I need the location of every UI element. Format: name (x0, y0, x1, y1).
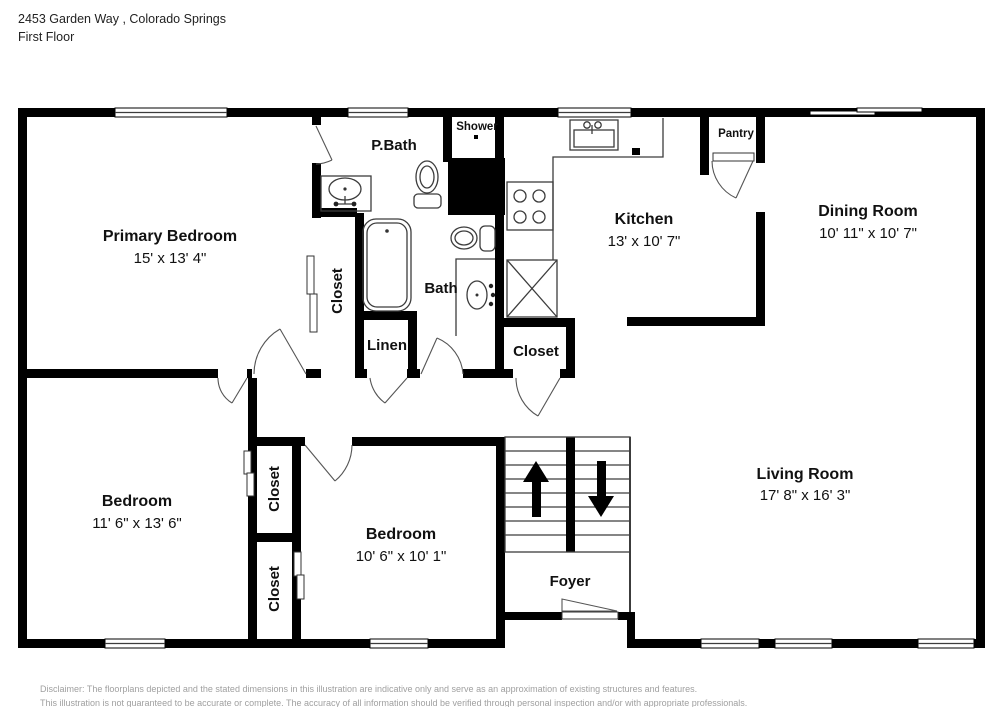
bath-toilet-icon (451, 226, 495, 251)
disclaimer: Disclaimer: The floorplans depicted and … (40, 683, 970, 707)
address-line: 2453 Garden Way , Colorado Springs (18, 10, 226, 28)
floorplan-canvas: Primary Bedroom 15' x 13' 4" Kitchen 13'… (0, 0, 1000, 707)
window (115, 108, 227, 117)
linen-label: Linen (367, 337, 407, 354)
window (701, 639, 759, 648)
hall-closet-label: Closet (513, 343, 559, 360)
primary-bedroom-door (254, 329, 306, 374)
pbath-sink-icon (321, 176, 371, 211)
window (370, 639, 428, 648)
kitchen-label: Kitchen (615, 211, 674, 228)
walls-layer (18, 108, 985, 648)
bedroom-middle-dims: 10' 6" x 10' 1" (356, 548, 447, 565)
foyer-label: Foyer (550, 573, 591, 590)
bedroom-middle-door (305, 445, 352, 481)
fridge-icon (507, 260, 557, 317)
stairs-up-arrow-icon (523, 461, 549, 517)
kitchen-dims: 13' x 10' 7" (608, 233, 681, 250)
kitchen-sink-icon (570, 120, 618, 150)
primary-closet-slider (307, 256, 317, 332)
bedroom-left-dims: 11' 6" x 13' 6" (92, 515, 182, 532)
bedroom-left-door (218, 378, 247, 403)
dining-room-label: Dining Room (818, 203, 918, 220)
window (775, 639, 832, 648)
disclaimer-line2: This illustration is not guaranteed to b… (40, 697, 970, 707)
pantry-door (712, 153, 754, 198)
window (105, 639, 165, 648)
pantry-label: Pantry (718, 128, 754, 140)
shower-label: Shower (456, 121, 498, 133)
window (348, 108, 408, 117)
linen-door (370, 378, 407, 403)
bedroom-left-label: Bedroom (102, 493, 172, 510)
bath-vanity-icon (456, 259, 495, 336)
stairs-down-arrow-icon (588, 461, 614, 517)
living-room-label: Living Room (757, 466, 854, 483)
hall-closet-door (516, 378, 560, 416)
disclaimer-line1: Disclaimer: The floorplans depicted and … (40, 683, 970, 697)
stove-icon (507, 182, 553, 230)
floorplan-page: 2453 Garden Way , Colorado Springs First… (0, 0, 1000, 707)
plan-header: 2453 Garden Way , Colorado Springs First… (18, 10, 226, 46)
bathtub-icon (363, 219, 411, 311)
pbath-toilet-icon (414, 161, 441, 208)
shower-drain-icon (474, 135, 478, 139)
entry-door (562, 599, 618, 619)
closet-lower-label: Closet (266, 566, 283, 612)
primary-closet-label: Closet (329, 268, 346, 314)
window (558, 108, 631, 117)
bath-label: Bath (424, 280, 457, 297)
bath-door (421, 338, 463, 374)
dishwasher-mark (632, 148, 640, 155)
dining-room-dims: 10' 11" x 10' 7" (819, 225, 917, 242)
closet-upper-label: Closet (266, 466, 283, 512)
bedroom-middle-label: Bedroom (366, 526, 436, 543)
living-room-dims: 17' 8" x 16' 3" (760, 487, 851, 504)
primary-bedroom-label: Primary Bedroom (103, 228, 237, 245)
pbath-label: P.Bath (371, 137, 417, 154)
primary-bedroom-dims: 15' x 13' 4" (134, 250, 207, 267)
window (918, 639, 974, 648)
floor-line: First Floor (18, 28, 226, 46)
